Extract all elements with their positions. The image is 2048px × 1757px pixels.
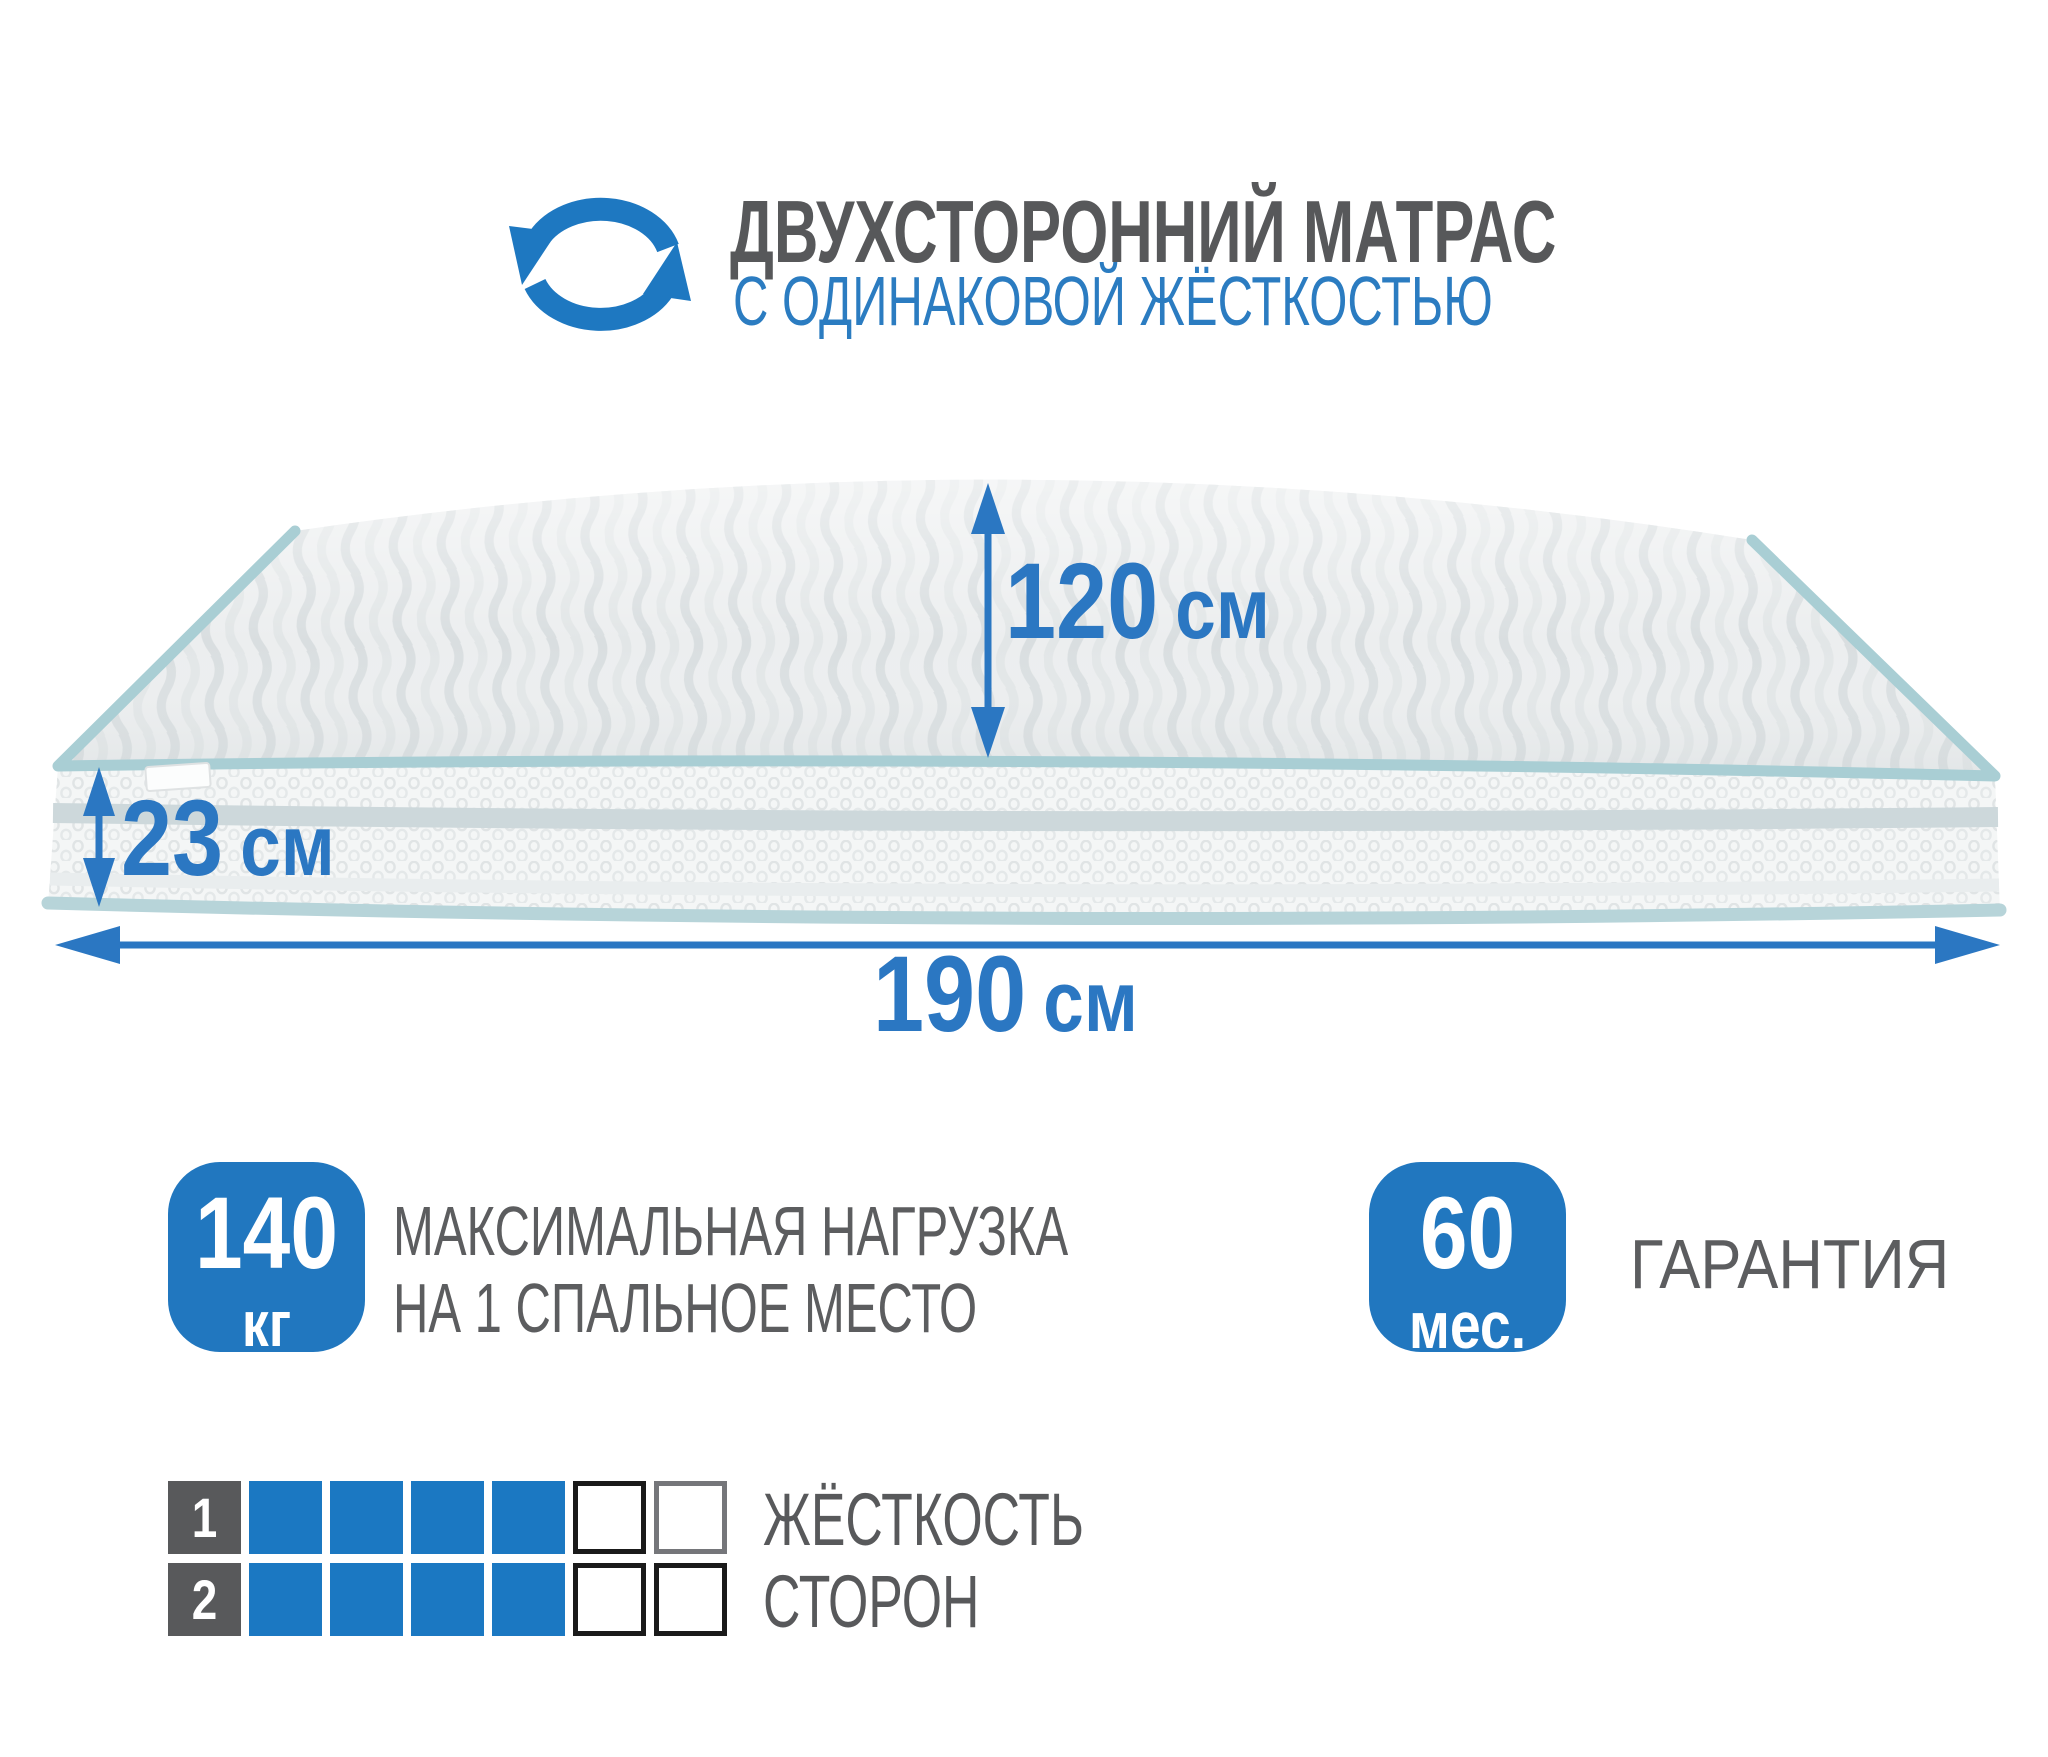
firmness-row: 2 bbox=[168, 1563, 727, 1636]
firmness-scale: 12 bbox=[168, 1481, 727, 1645]
firmness-filled-square bbox=[330, 1481, 403, 1554]
firmness-row: 1 bbox=[168, 1481, 727, 1554]
firmness-filled-square bbox=[411, 1481, 484, 1554]
firmness-filled-square bbox=[411, 1563, 484, 1636]
firmness-filled-square bbox=[249, 1481, 322, 1554]
firmness-filled-square bbox=[492, 1481, 565, 1554]
side-number: 1 bbox=[168, 1481, 241, 1554]
firmness-empty-square bbox=[573, 1481, 646, 1554]
warranty-unit: мес. bbox=[1385, 1292, 1550, 1358]
warranty-value: 60 bbox=[1385, 1182, 1550, 1284]
firmness-label-line2: СТОРОН bbox=[763, 1559, 1072, 1644]
max-load-label: МАКСИМАЛЬНАЯ НАГРУЗКА НА 1 СПАЛЬНОЕ МЕСТ… bbox=[393, 1193, 1357, 1347]
side-number: 2 bbox=[168, 1563, 241, 1636]
firmness-empty-square bbox=[654, 1481, 727, 1554]
firmness-filled-square bbox=[492, 1563, 565, 1636]
firmness-label-line1: ЖЁСТКОСТЬ bbox=[763, 1477, 1222, 1562]
rotate-arrows-icon bbox=[505, 188, 695, 338]
firmness-empty-square bbox=[654, 1563, 727, 1636]
firmness-filled-square bbox=[249, 1563, 322, 1636]
warranty-label: ГАРАНТИЯ bbox=[1630, 1226, 1993, 1303]
firmness-filled-square bbox=[330, 1563, 403, 1636]
max-load-badge: 140 кг bbox=[168, 1162, 365, 1352]
warranty-badge: 60 мес. bbox=[1369, 1162, 1566, 1352]
firmness-empty-square bbox=[573, 1563, 646, 1636]
length-dimension-label: 190см bbox=[873, 940, 1185, 1048]
max-load-value: 140 bbox=[184, 1182, 349, 1284]
depth-dimension-label: 120см bbox=[1005, 547, 1317, 655]
height-dimension-label: 23см bbox=[121, 784, 373, 892]
max-load-unit: кг bbox=[184, 1292, 349, 1356]
page-subtitle: С ОДИНАКОВОЙ ЖЁСТКОСТЬЮ bbox=[733, 261, 1818, 341]
infographic-canvas: ДВУХСТОРОННИЙ МАТРАС С ОДИНАКОВОЙ ЖЁСТКО… bbox=[0, 0, 2048, 1757]
